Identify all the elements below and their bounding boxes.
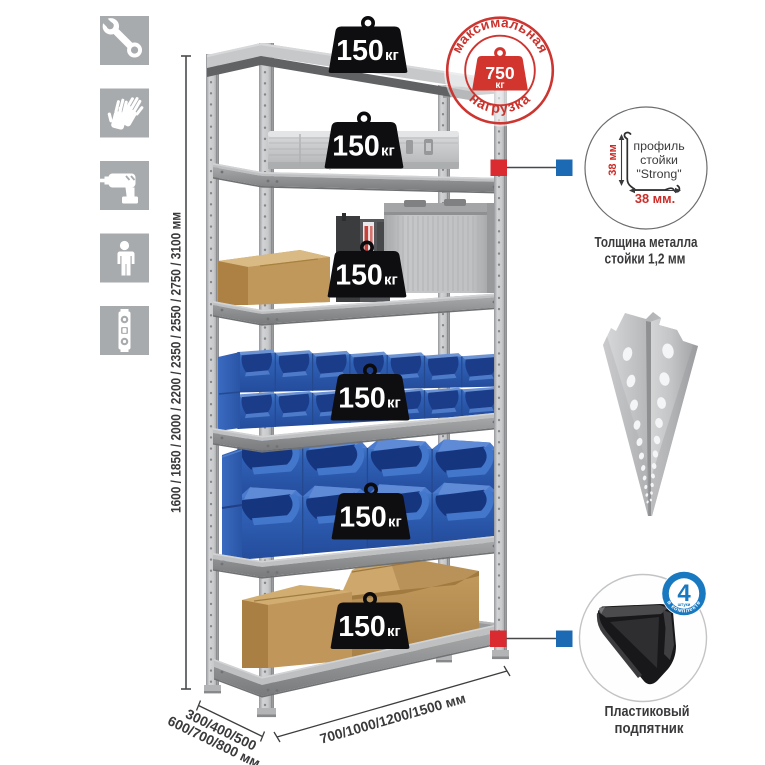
svg-text:штуки: штуки: [678, 602, 691, 607]
svg-text:стойки: стойки: [640, 153, 678, 167]
svg-text:кг: кг: [495, 80, 504, 91]
svg-text:38 мм: 38 мм: [607, 144, 619, 176]
svg-text:"Strong": "Strong": [636, 167, 681, 181]
svg-text:профиль: профиль: [633, 139, 684, 153]
svg-text:38 мм.: 38 мм.: [635, 191, 675, 206]
svg-text:стойки 1,2 мм: стойки 1,2 мм: [605, 252, 686, 268]
svg-text:подпятник: подпятник: [615, 721, 685, 737]
svg-text:1600 / 1850 / 2000 / 2200 / 23: 1600 / 1850 / 2000 / 2200 / 2350 / 2550 …: [168, 212, 184, 513]
svg-text:Пластиковый: Пластиковый: [605, 704, 690, 720]
svg-text:Толщина металла: Толщина металла: [595, 235, 699, 251]
